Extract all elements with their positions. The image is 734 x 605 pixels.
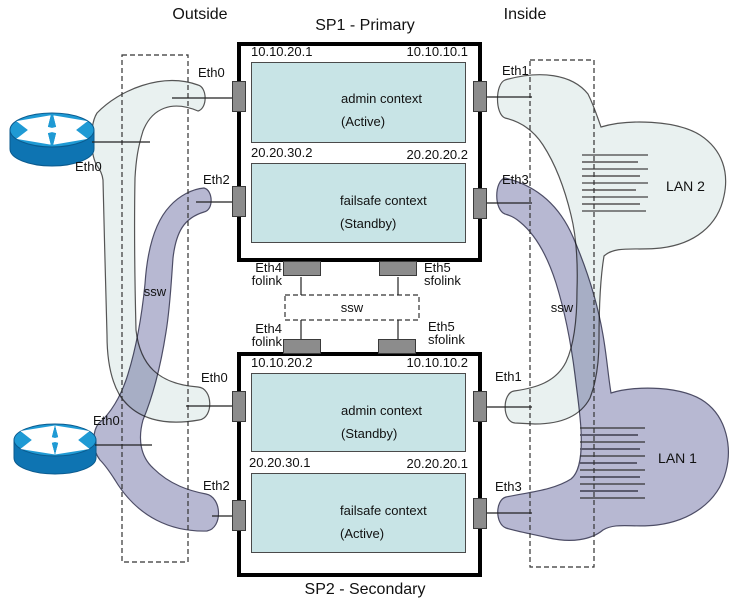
sp2-failsafe-context-state: (Active): [340, 527, 384, 541]
sp1-eth3-label: Eth3: [502, 173, 529, 187]
sp2-eth0-label: Eth0: [201, 371, 228, 385]
sp2-failsafe-inside-ip: 20.20.20.1: [407, 457, 468, 471]
sp1-sfolink-label: Eth5 sfolink: [424, 261, 461, 287]
sp2-port-eth4: [283, 339, 321, 354]
sp1-port-eth4: [283, 261, 321, 276]
sp1-eth1-label: Eth1: [502, 64, 529, 78]
failover-switch-label: ssw: [285, 301, 419, 315]
sp1-failsafe-context-label: failsafe context: [340, 194, 427, 208]
inside-lan2-segment-shape: [498, 75, 726, 424]
sp2-sfolink-label: Eth5 sfolink: [428, 320, 465, 346]
sp2-failsafe-outside-ip: 20.20.30.1: [249, 456, 310, 470]
sp1-port-eth3: [473, 188, 487, 219]
sp2-eth2-label: Eth2: [203, 479, 230, 493]
sp2-title: SP2 - Secondary: [245, 581, 485, 599]
sp1-eth2-label: Eth2: [203, 173, 230, 187]
sp1-sfolink-role: sfolink: [424, 274, 461, 287]
sp2-folink-role: folink: [252, 335, 282, 348]
inside-zone-label: Inside: [475, 6, 575, 24]
sp1-admin-outside-ip: 10.10.20.1: [251, 45, 312, 59]
router-outside-bottom-icon: [14, 424, 96, 474]
sp2-eth1-label: Eth1: [495, 370, 522, 384]
sp1-failsafe-inside-ip: 20.20.20.2: [407, 148, 468, 162]
router-bottom-eth0-label: Eth0: [93, 414, 120, 428]
sp2-eth3-label: Eth3: [495, 480, 522, 494]
sp1-failsafe-outside-ip: 20.20.30.2: [251, 146, 312, 160]
sp2-folink-label: Eth4 folink: [252, 322, 282, 348]
inside-switch-label: ssw: [530, 301, 594, 315]
sp1-admin-context-state: (Active): [341, 115, 385, 129]
sp2-sfolink-role: sfolink: [428, 333, 465, 346]
sp1-port-eth0: [232, 81, 246, 112]
sp1-failsafe-context-state: (Standby): [340, 217, 396, 231]
sp2-admin-inside-ip: 10.10.10.2: [407, 356, 468, 370]
sp1-eth0-label: Eth0: [198, 66, 225, 80]
lan1-label: LAN 1: [630, 451, 725, 465]
sp1-admin-context-label: admin context: [341, 92, 422, 106]
sp1-port-eth1: [473, 81, 487, 112]
sp2-port-eth0: [232, 391, 246, 422]
outside-switch-label: ssw: [122, 285, 188, 299]
failover-network-diagram: Outside Inside SP1 - Primary 10.10.20.1 …: [0, 0, 734, 605]
sp2-port-eth5: [378, 339, 416, 354]
outside-zone-label: Outside: [150, 6, 250, 24]
sp2-admin-context-label: admin context: [341, 404, 422, 418]
router-top-eth0-label: Eth0: [75, 160, 102, 174]
sp2-admin-context-state: (Standby): [341, 427, 397, 441]
lan2-label: LAN 2: [638, 179, 733, 193]
sp1-admin-inside-ip: 10.10.10.1: [407, 45, 468, 59]
sp2-port-eth2: [232, 500, 246, 531]
sp1-port-eth5: [379, 261, 417, 276]
sp2-port-eth1: [473, 391, 487, 422]
sp1-folink-role: folink: [252, 274, 282, 287]
sp1-port-eth2: [232, 186, 246, 217]
sp2-admin-outside-ip: 10.10.20.2: [251, 356, 312, 370]
sp2-failsafe-context-label: failsafe context: [340, 504, 427, 518]
sp1-folink-label: Eth4 folink: [252, 261, 282, 287]
sp2-port-eth3: [473, 498, 487, 529]
sp1-title: SP1 - Primary: [245, 17, 485, 35]
